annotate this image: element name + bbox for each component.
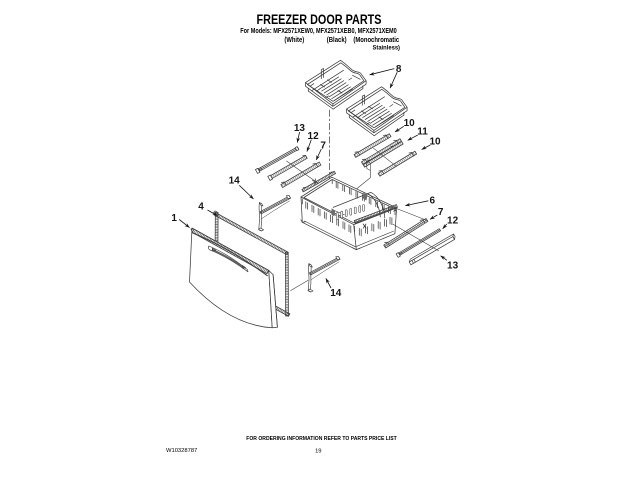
svg-text:13: 13 — [294, 123, 306, 134]
svg-text:12: 12 — [308, 131, 320, 142]
svg-text:W10328787: W10328787 — [166, 448, 197, 454]
svg-text:14: 14 — [330, 288, 342, 299]
svg-text:Stainless): Stainless) — [373, 45, 401, 52]
svg-text:FOR ORDERING INFORMATION REFER: FOR ORDERING INFORMATION REFER TO PARTS … — [246, 436, 397, 442]
svg-text:10: 10 — [429, 136, 441, 147]
svg-text:For Models: MFX2571XEW0, MFX25: For Models: MFX2571XEW0, MFX2571XEB0, MF… — [240, 26, 397, 35]
svg-text:FREEZER DOOR PARTS: FREEZER DOOR PARTS — [257, 12, 382, 27]
svg-text:14: 14 — [229, 176, 241, 187]
svg-text:11: 11 — [417, 127, 428, 138]
svg-text:1: 1 — [171, 213, 177, 224]
svg-text:13: 13 — [447, 261, 459, 272]
svg-text:(White): (White) — [284, 37, 304, 44]
svg-text:7: 7 — [320, 141, 326, 152]
svg-text:19: 19 — [315, 449, 321, 455]
svg-text:4: 4 — [198, 201, 204, 212]
svg-text:10: 10 — [404, 118, 416, 129]
svg-text:6: 6 — [430, 196, 436, 207]
svg-text:(Monochromatic: (Monochromatic — [353, 37, 399, 44]
svg-text:8: 8 — [396, 64, 402, 75]
svg-text:12: 12 — [447, 216, 459, 227]
svg-text:7: 7 — [438, 207, 444, 218]
svg-text:(Black): (Black) — [327, 37, 347, 44]
